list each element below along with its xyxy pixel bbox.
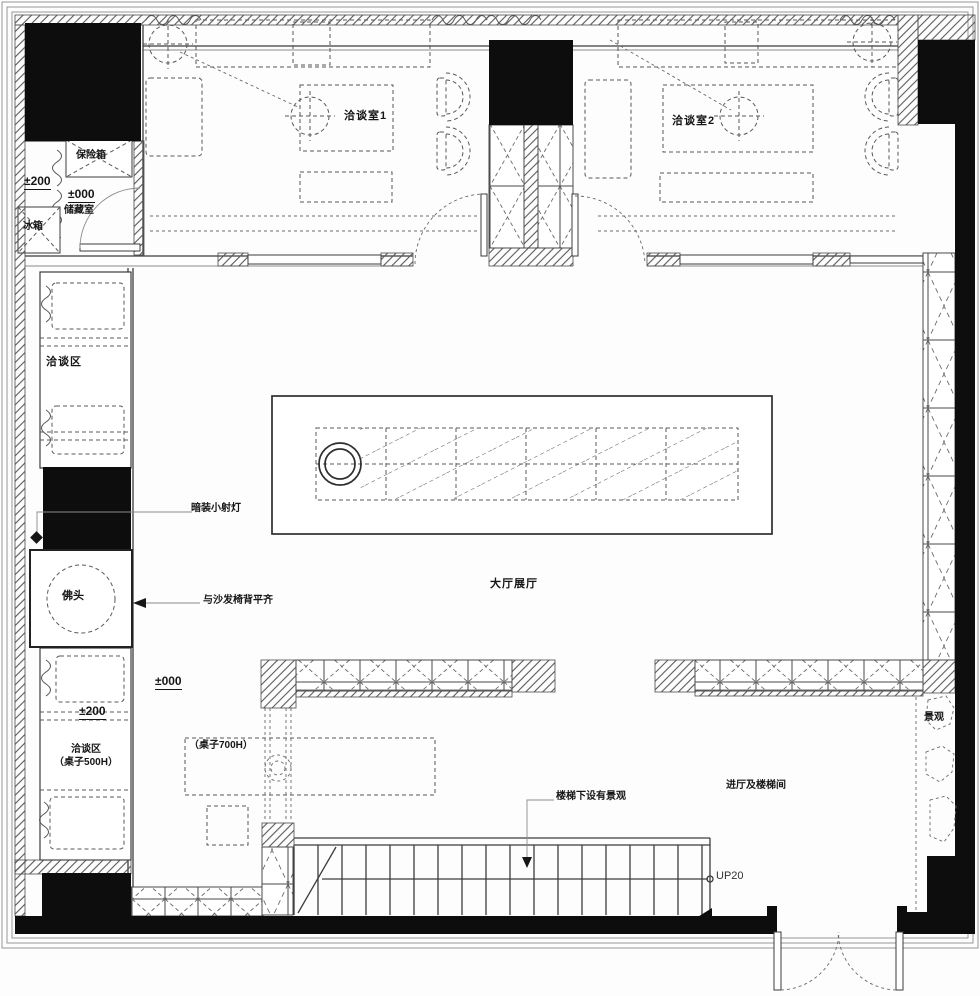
level-mark-000-storage: ±000: [68, 187, 95, 203]
label-up20: UP20: [716, 870, 744, 884]
ceiling-light-icon: [714, 91, 764, 141]
column-block: [489, 40, 573, 125]
ceiling-light-icon: [143, 19, 193, 69]
door-leaf: [572, 194, 578, 256]
level-mark-200-lower: ±200: [79, 704, 106, 720]
label-main-hall: 大厅展厅: [490, 578, 538, 592]
door-swing: [575, 196, 645, 264]
talk-area-lower-line1: 洽谈区: [40, 744, 132, 757]
label-storage-room: 储藏室: [64, 205, 94, 218]
room1-side-sofa: [146, 78, 202, 156]
stone-icon: [930, 796, 956, 842]
room1-bench: [300, 172, 392, 202]
leader-arrow: [522, 857, 532, 868]
door-swing: [415, 194, 484, 264]
label-meeting-room-1: 洽谈室1: [344, 110, 387, 124]
bottom-wall: [15, 916, 775, 934]
label-landscape-under-stairs: 楼梯下设有景观: [556, 791, 626, 804]
lamp-icon: [30, 531, 43, 544]
label-landscape: 景观: [924, 712, 944, 725]
armchair: [865, 73, 898, 121]
label-entry-hall: 进厅及楼梯间: [726, 780, 786, 793]
label-buddha-head: 佛头: [62, 590, 84, 604]
label-flush-with-sofa: 与沙发椅背平齐: [203, 595, 273, 608]
armchair: [437, 73, 470, 121]
leader-arrow: [133, 598, 146, 608]
armchair: [437, 127, 470, 175]
label-spotlight: 暗装小射灯: [191, 503, 241, 516]
ceiling-light-icon: [285, 91, 335, 141]
low-cabinet-panel: [248, 255, 381, 264]
low-cabinet-panel: [680, 255, 813, 264]
level-mark-000-hall: ±000: [155, 674, 182, 690]
stone-icon: [926, 746, 954, 782]
entry-door-leaf: [896, 932, 903, 990]
door-leaf: [481, 194, 487, 256]
armchair: [865, 127, 898, 175]
spotlight-block: [43, 467, 131, 549]
entry-door-swing: [781, 932, 839, 990]
entry-door-swing: [838, 932, 896, 990]
column-block: [918, 40, 975, 124]
column-block: [25, 23, 141, 141]
storage-door-leaf: [80, 244, 140, 251]
label-safe: 保险箱: [76, 150, 106, 163]
floor-plan: 洽谈室1 洽谈室2 保险箱 ±200 ±000 储藏室 冰箱 洽谈区 暗装小射灯…: [0, 0, 980, 996]
label-talk-area-lower: 洽谈区 （桌子500H）: [40, 744, 132, 769]
stool: [207, 806, 248, 845]
entry-door-leaf: [774, 932, 781, 990]
room2-bench: [660, 173, 813, 202]
label-table-700h: （桌子700H）: [189, 740, 253, 753]
label-fridge: 冰箱: [23, 221, 43, 234]
right-wall: [955, 124, 975, 856]
talk-area-lower-line2: （桌子500H）: [40, 757, 132, 770]
room1-desk: [196, 20, 430, 67]
floor-plan-drawing: [0, 0, 980, 996]
room2-side-sofa: [585, 80, 631, 178]
label-meeting-room-2: 洽谈室2: [672, 115, 715, 129]
furniture: [30, 16, 898, 861]
label-talk-area-upper: 洽谈区: [46, 356, 82, 370]
level-mark-200-upper: ±200: [24, 174, 51, 190]
staircase: [294, 838, 713, 915]
